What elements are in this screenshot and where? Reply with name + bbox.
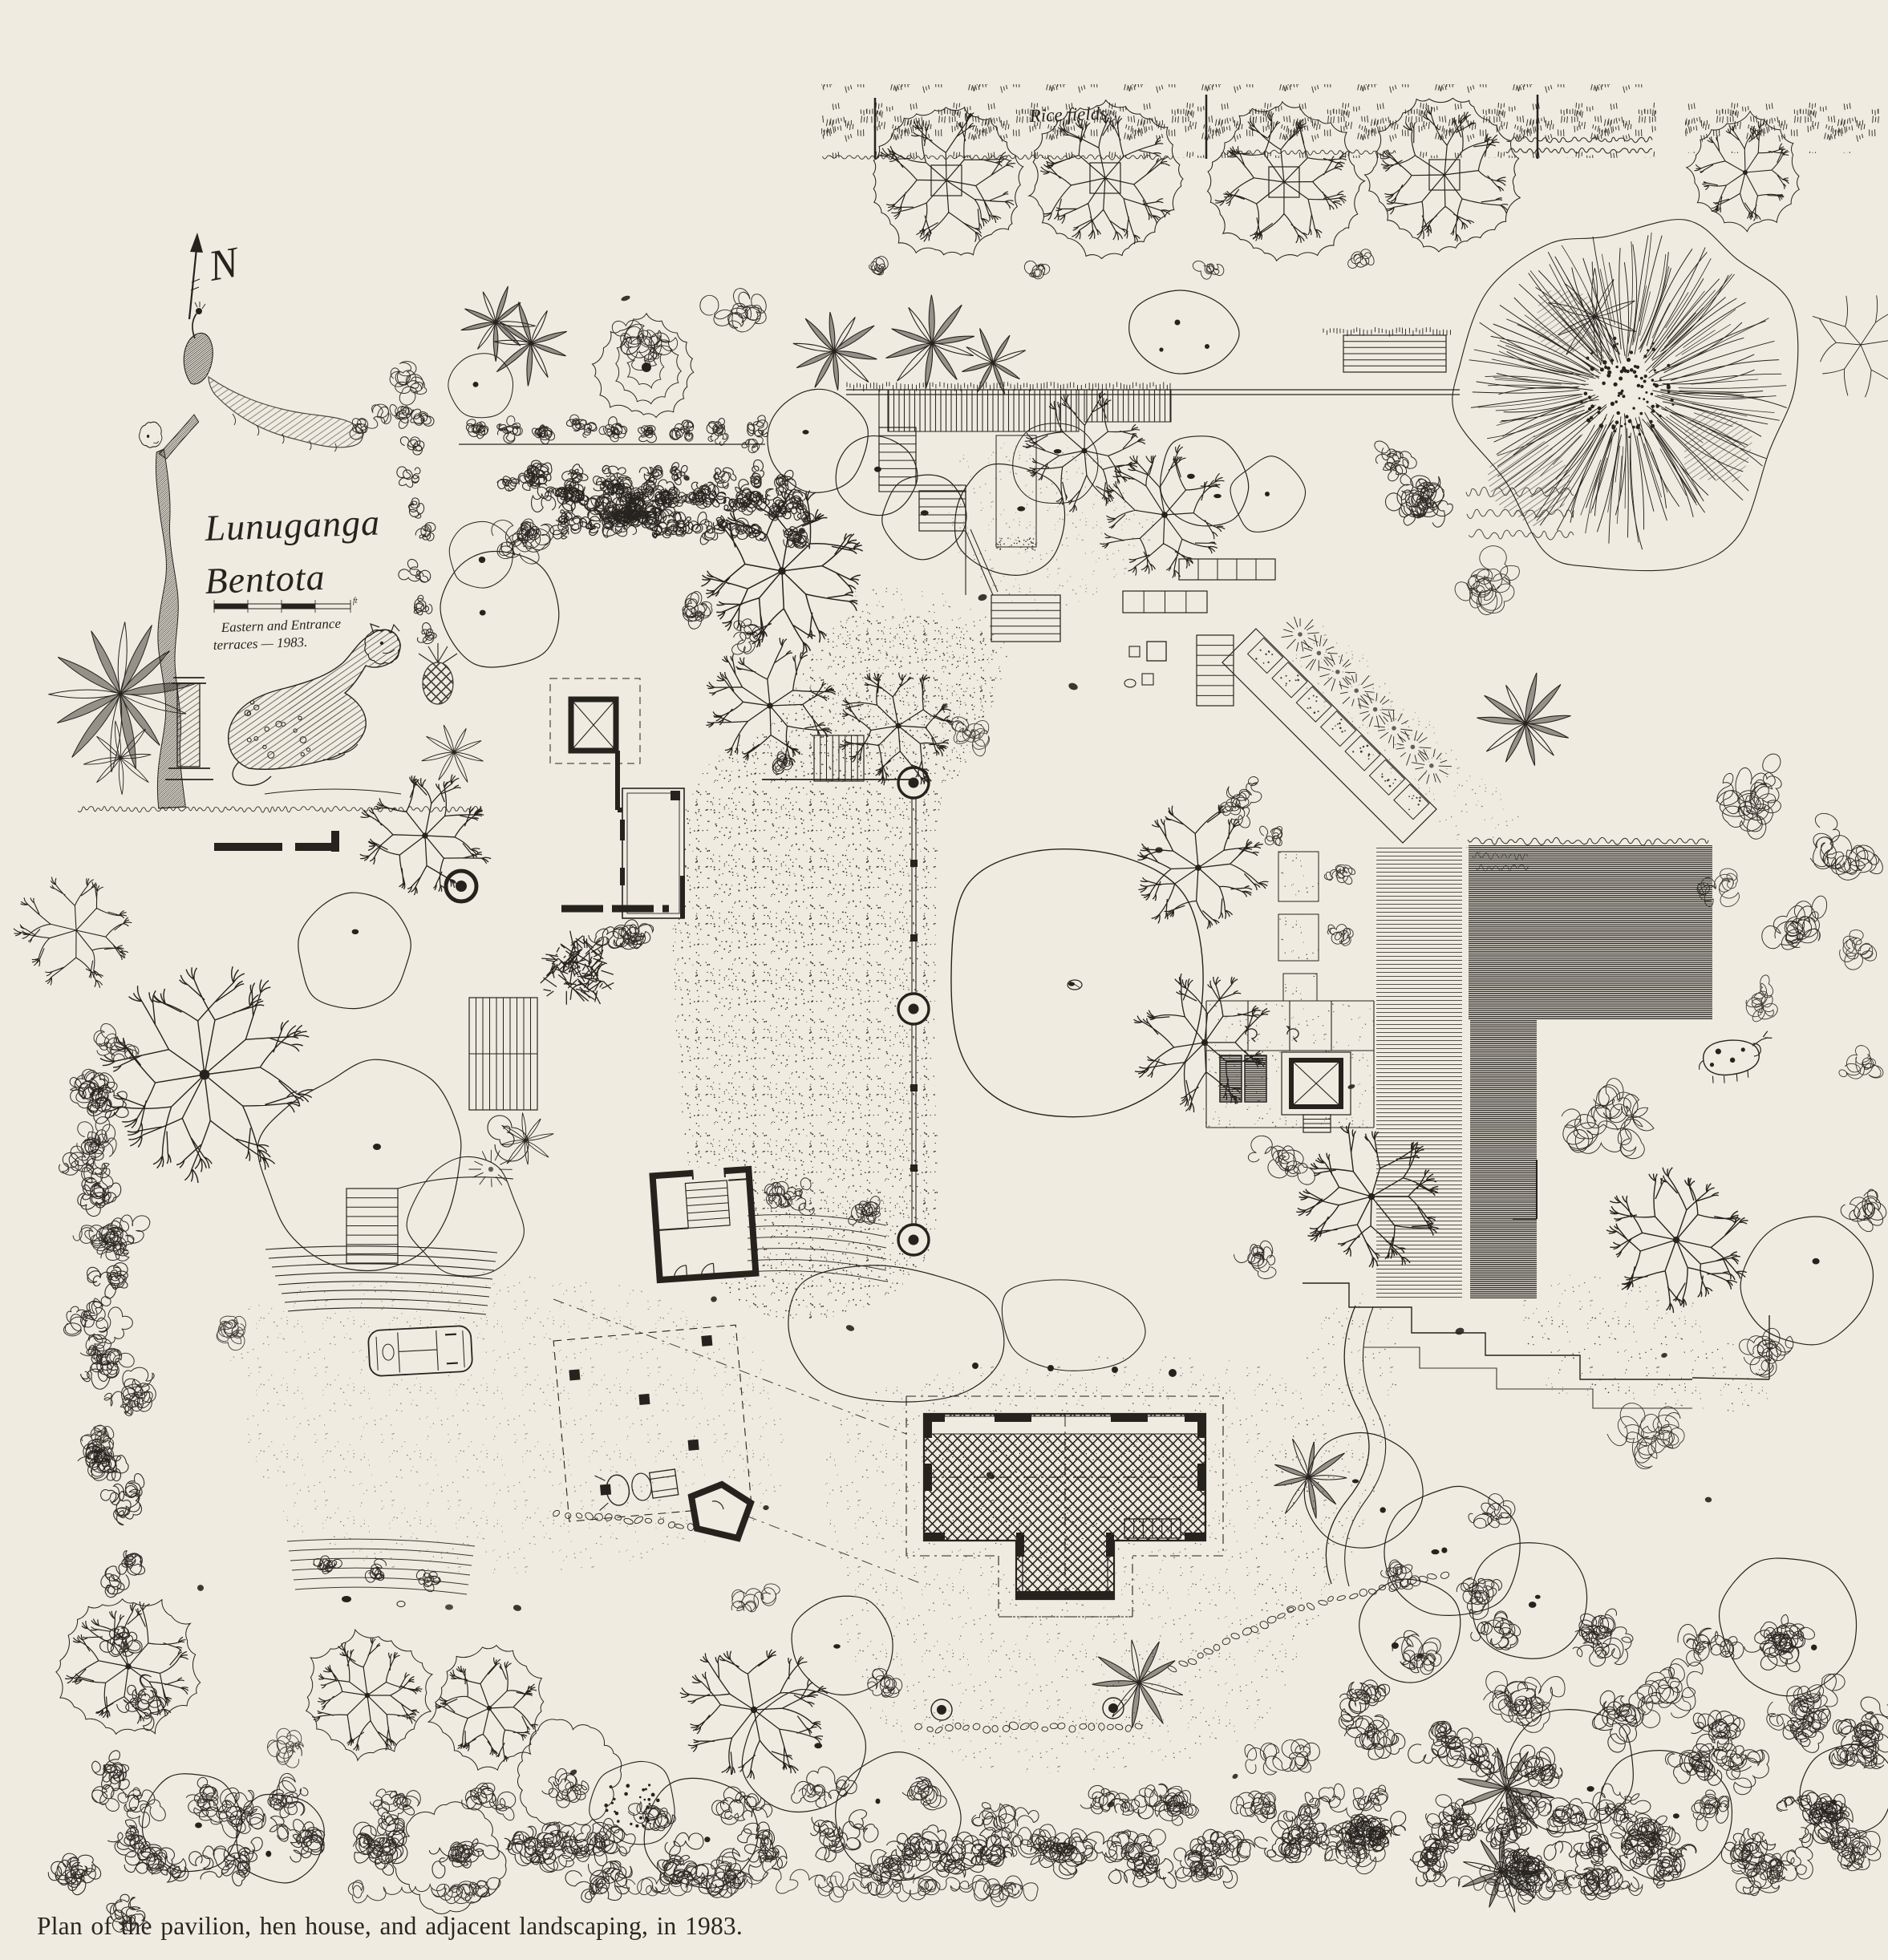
svg-text:ft: ft [353, 597, 358, 605]
svg-text:Plan of the pavilion, hen hous: Plan of the pavilion, hen house, and adj… [37, 1912, 743, 1940]
svg-text:Bentota: Bentota [205, 557, 326, 601]
svg-text:Lunuganga: Lunuganga [204, 501, 381, 549]
